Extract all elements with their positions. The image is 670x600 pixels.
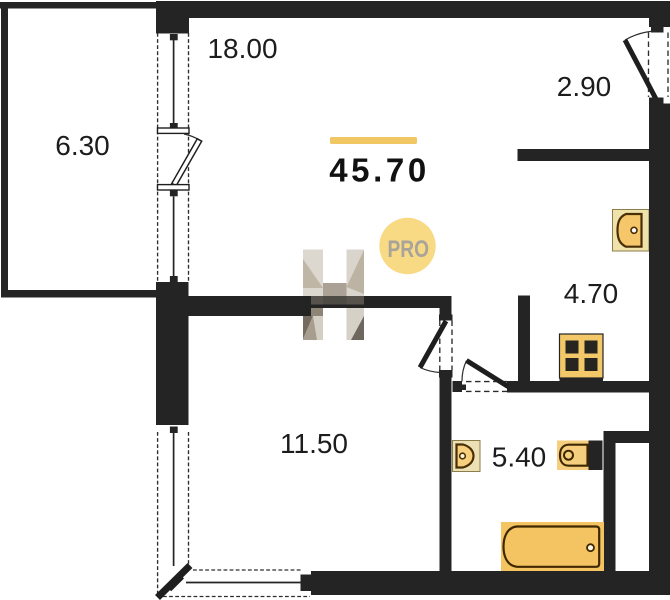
svg-text:5.40: 5.40	[492, 442, 547, 473]
svg-text:6.30: 6.30	[55, 130, 110, 161]
svg-text:4.70: 4.70	[564, 278, 619, 309]
svg-text:11.50: 11.50	[280, 428, 348, 459]
svg-text:2.90: 2.90	[557, 71, 612, 102]
svg-text:18.00: 18.00	[207, 33, 277, 64]
svg-text:PRO: PRO	[388, 236, 430, 263]
svg-text:45.70: 45.70	[329, 151, 430, 188]
